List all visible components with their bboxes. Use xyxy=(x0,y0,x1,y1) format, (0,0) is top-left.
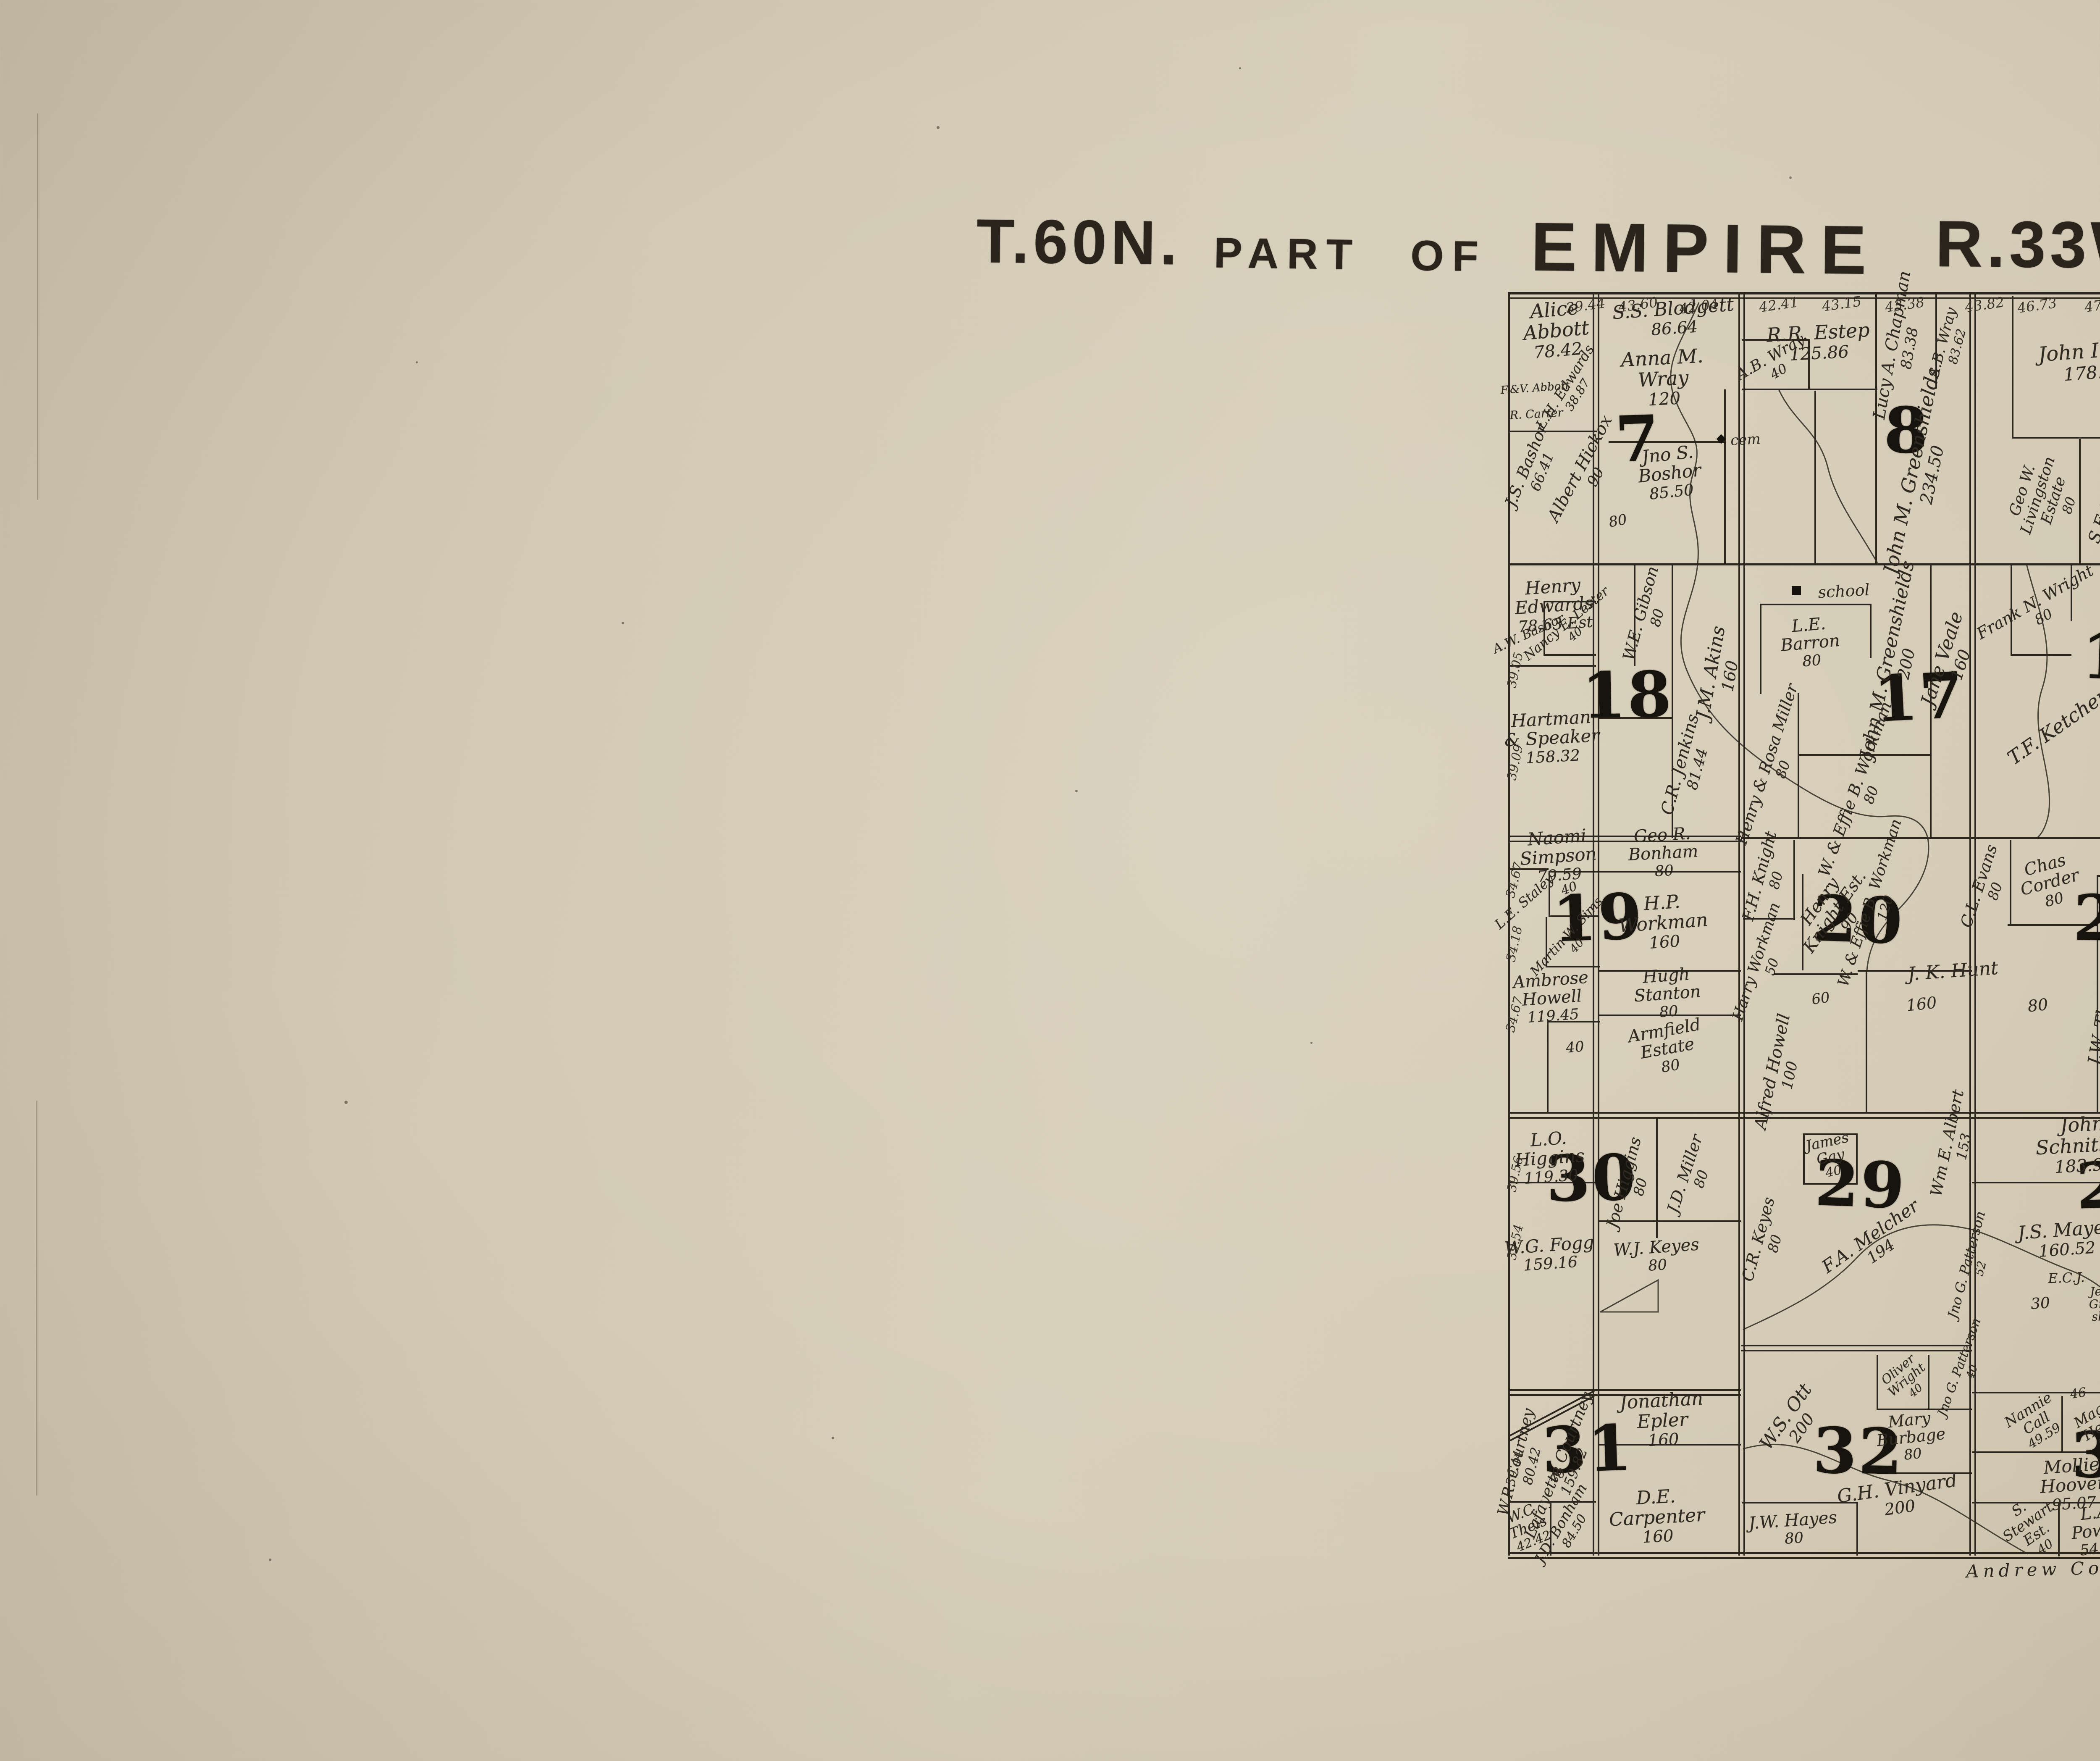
speck xyxy=(1789,176,1792,179)
acreage-number: 80 xyxy=(2027,995,2049,1016)
speck xyxy=(622,622,624,624)
parcel-label: L.E. Barron80 xyxy=(1766,612,1854,673)
speck xyxy=(269,1559,271,1561)
parcel-label: L.O. Higgins119.30 xyxy=(1498,1126,1602,1188)
parcel-label: Hartman & Speaker158.32 xyxy=(1502,707,1602,767)
title-township: T.60N. xyxy=(976,205,1182,279)
acreage-number: 160 xyxy=(1906,993,1938,1015)
parcel-label: Geo R. Bonham80 xyxy=(1603,823,1723,883)
parcel-label: Ambrose Howell119.45 xyxy=(1502,968,1602,1028)
acreage-number: 60 xyxy=(1811,989,1831,1008)
cemetery-label: cem xyxy=(1730,431,1761,449)
speck xyxy=(416,361,418,363)
parcel-label: Naomi Simpson79.59 xyxy=(1506,824,1611,887)
speck xyxy=(937,126,940,129)
parcel-label: W.G. Fogg159.16 xyxy=(1502,1233,1597,1275)
atlas-page: T.60N. PART OF EMPIRE R.33W. xyxy=(0,0,2100,1761)
parcel-label: Jno S. Boshor85.50 xyxy=(1619,440,1721,505)
speck xyxy=(1075,790,1078,792)
parcel-label: W.J. Keyes80 xyxy=(1605,1235,1708,1277)
parcel-label: John Schnitker183.90 xyxy=(2010,1111,2100,1179)
speck xyxy=(1310,1042,1312,1044)
acreage-number: 46 xyxy=(2069,1385,2087,1402)
parcel-label: L.A. Powell54.17 xyxy=(2055,1500,2100,1561)
title-township-name: EMPIRE xyxy=(1530,208,1881,290)
speck xyxy=(344,1101,348,1104)
fold-crease xyxy=(37,113,38,500)
acreage-number: 30 xyxy=(2030,1294,2051,1313)
speck xyxy=(1239,67,1241,69)
title-part-of: PART OF xyxy=(1213,228,1487,281)
parcel-label: Jennie Green-shield xyxy=(2079,1284,2100,1325)
parcel-label: J.S. Mayes160.52 xyxy=(2011,1216,2100,1262)
parcel-label: Mary Burbage80 xyxy=(1862,1407,1959,1467)
fold-crease xyxy=(36,1101,37,1496)
parcel-label: John Inglis178.31 xyxy=(2029,336,2100,386)
parcel-label: Jonathan Epler160 xyxy=(1602,1388,1723,1452)
acreage-number: 40 xyxy=(1565,1038,1585,1057)
title-range: R.33W. xyxy=(1935,207,2100,284)
parcel-label: Anna M. Wray120 xyxy=(1607,345,1719,411)
school-building-icon xyxy=(1792,586,1801,595)
parcel-label: J.W. Hayes80 xyxy=(1746,1509,1840,1550)
parcel-label: D.E. Carpenter160 xyxy=(1597,1484,1717,1548)
parcel-label: H.P. Workman160 xyxy=(1606,889,1719,955)
plat-map: 39.44 43.60 42.04 42.41 43.15 43.38 43.8… xyxy=(1508,292,2100,1598)
acreage-number: 80 xyxy=(1607,511,1628,531)
parcel-label: E.C.J. xyxy=(2048,1270,2085,1287)
school-label: school xyxy=(1817,581,1870,602)
speck xyxy=(832,1437,834,1439)
